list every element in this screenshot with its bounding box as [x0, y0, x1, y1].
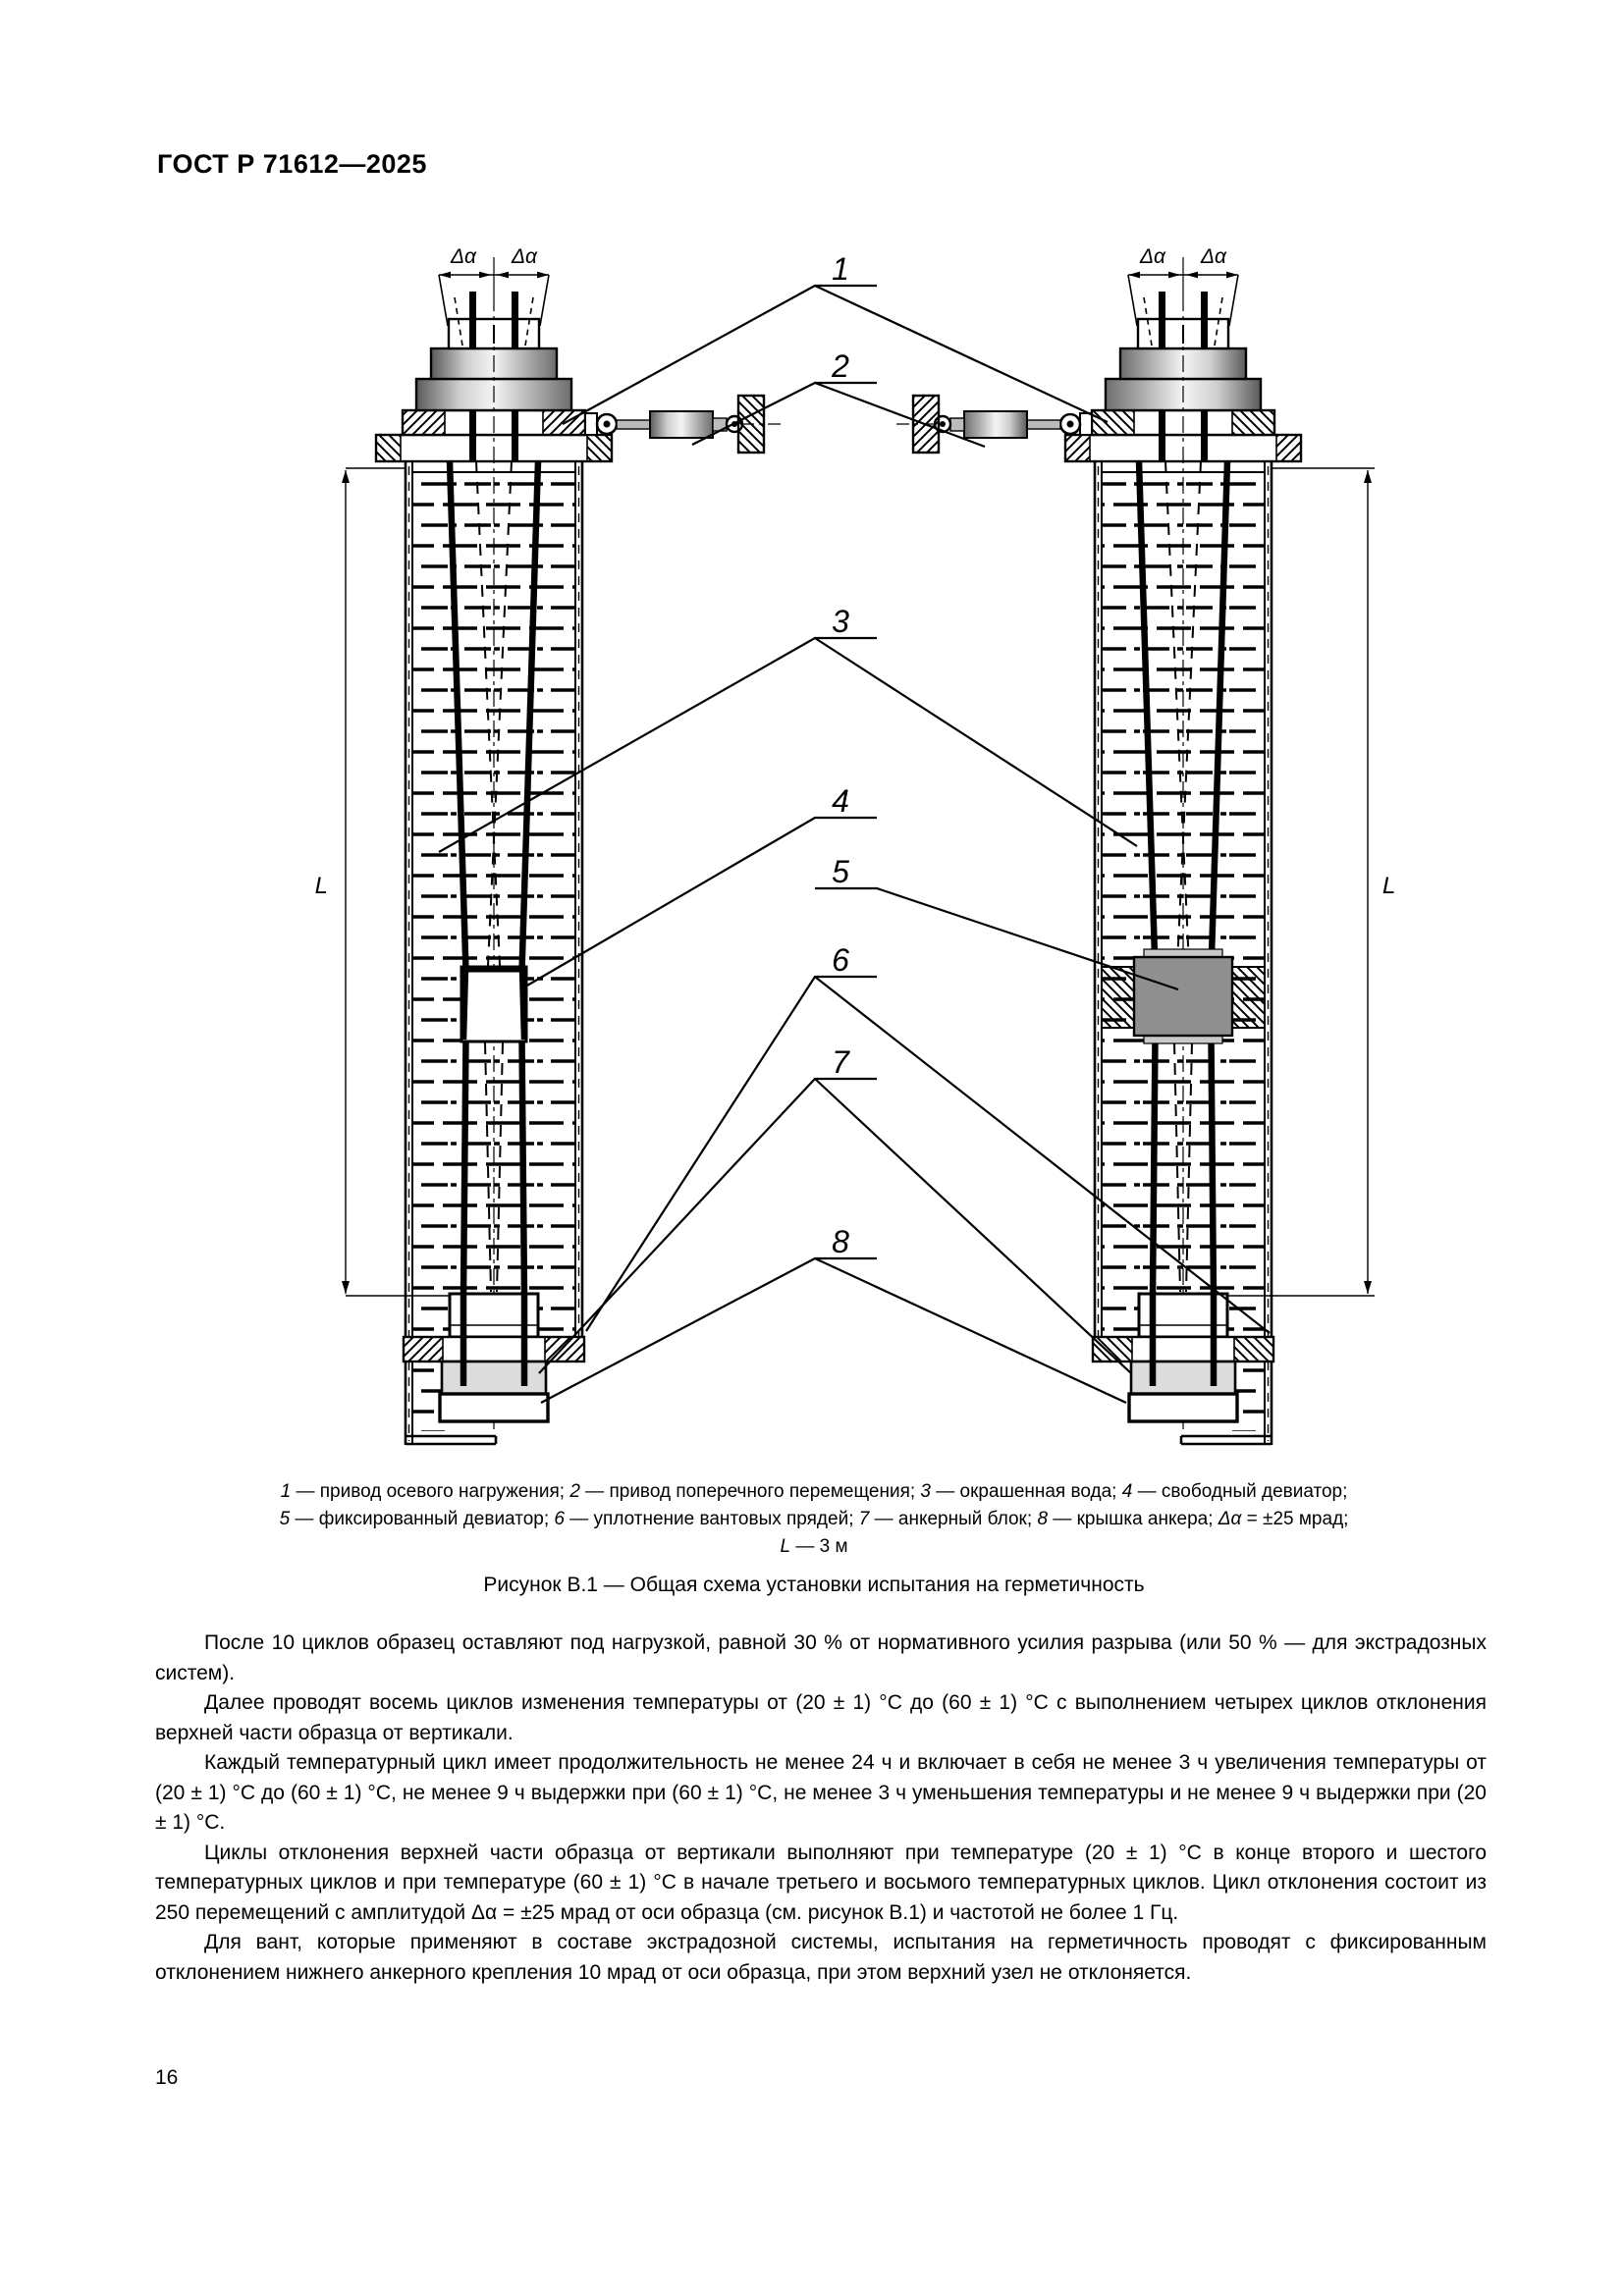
length-label: L — [1382, 873, 1395, 899]
figure-b1-diagram: Δα Δα Δα Δα L L 1 2 3 4 5 6 7 8 — [0, 0, 1624, 1472]
delta-alpha-label: Δα — [1200, 245, 1227, 268]
callout-8-leader — [541, 1258, 1126, 1403]
paragraph: Циклы отклонения верхней части образца о… — [155, 1839, 1487, 1929]
callout-1: 1 — [832, 251, 849, 287]
callout-7: 7 — [832, 1044, 850, 1080]
callout-2-leader — [692, 383, 985, 447]
delta-alpha-label: Δα — [1139, 245, 1166, 268]
test-specimen-column-left — [376, 257, 781, 1445]
paragraph: Каждый температурный цикл имеет продолжи… — [155, 1748, 1487, 1839]
paragraph: После 10 циклов образец оставляют под на… — [155, 1629, 1487, 1688]
callout-6: 6 — [832, 942, 849, 978]
legend-line: 1 — привод осевого нагружения; 2 — приво… — [137, 1478, 1490, 1506]
callout-3: 3 — [832, 604, 849, 639]
callout-2: 2 — [831, 348, 849, 384]
body-text: После 10 циклов образец оставляют под на… — [155, 1629, 1487, 1988]
delta-alpha-label: Δα — [450, 245, 477, 268]
page-number: 16 — [155, 2066, 178, 2090]
callout-8: 8 — [832, 1224, 849, 1259]
gost-document-page: { "page": { "header": "ГОСТ Р 71612—2025… — [0, 0, 1624, 2296]
figure-title: Рисунок В.1 — Общая схема установки испы… — [137, 1574, 1490, 1597]
delta-alpha-label: Δα — [511, 245, 538, 268]
callout-5: 5 — [832, 854, 849, 889]
callout-4: 4 — [832, 783, 849, 819]
legend-line: 5 — фиксированный девиатор; 6 — уплотнен… — [137, 1506, 1490, 1533]
paragraph: Для вант, которые применяют в составе эк… — [155, 1928, 1487, 1988]
free-deviator — [461, 967, 526, 1041]
length-label: L — [315, 873, 328, 899]
paragraph: Далее проводят восемь циклов изменения т… — [155, 1688, 1487, 1748]
figure-legend: 1 — привод осевого нагружения; 2 — приво… — [137, 1478, 1490, 1561]
legend-line: L — 3 м — [137, 1533, 1490, 1561]
